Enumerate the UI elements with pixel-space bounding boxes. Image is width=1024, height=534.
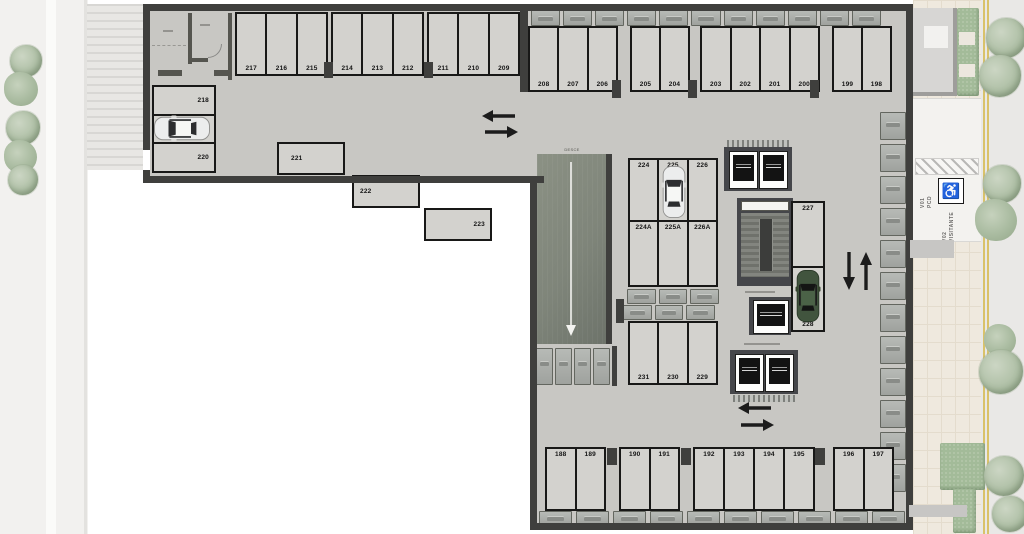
column-pillar	[810, 80, 819, 98]
room-label-mark	[200, 24, 210, 26]
wall-north	[143, 4, 913, 11]
spot-227: 227	[791, 201, 825, 268]
spot-row-196-197: 196 197	[833, 447, 894, 511]
accessible-icon: ♿	[938, 178, 964, 204]
wall-south-west-wing	[143, 176, 544, 183]
hedge	[940, 443, 985, 490]
traffic-arrow-right-icon	[740, 419, 774, 431]
storage-row-top	[531, 10, 881, 26]
traffic-arrow-left-icon	[482, 110, 516, 122]
storage-unit	[880, 304, 906, 332]
spot-row-199-198: 199 198	[832, 26, 892, 92]
traffic-arrow-down-icon	[843, 252, 855, 290]
spot-194: 194	[753, 447, 785, 511]
storage-unit	[880, 144, 906, 172]
elevator-vent-grille	[727, 140, 789, 147]
storage-unit	[555, 348, 572, 385]
storage-column-east	[880, 112, 906, 492]
spot-210: 210	[457, 12, 489, 76]
left-sidewalk-joint	[46, 0, 56, 534]
column-pillar	[688, 80, 697, 98]
spot-row-224A-226A: 224A 225A 226A	[628, 220, 718, 287]
bush	[975, 199, 1017, 241]
wall-south	[530, 523, 913, 530]
spot-208: 208	[528, 26, 559, 92]
spot-196: 196	[833, 447, 865, 511]
elevator-icon	[735, 354, 764, 392]
elevator-vent-grille	[733, 395, 795, 402]
stair-stringer	[759, 219, 773, 271]
storage-unit	[623, 305, 652, 320]
tree	[983, 165, 1021, 203]
spot-191: 191	[649, 447, 681, 511]
wall-wing-divider	[520, 4, 528, 92]
storage-unit	[880, 240, 906, 268]
storage-unit	[880, 400, 906, 428]
spot-226: 226	[687, 158, 718, 222]
spot-201: 201	[759, 26, 791, 92]
storage-unit	[756, 10, 785, 26]
spot-195: 195	[783, 447, 815, 511]
tree	[992, 496, 1024, 532]
room-dashed-line	[152, 45, 186, 46]
curb-step	[909, 505, 967, 517]
spot-190: 190	[619, 447, 651, 511]
no-parking-hatch	[915, 158, 979, 175]
spot-223: 223	[424, 208, 492, 241]
traffic-arrow-right-icon	[484, 126, 518, 138]
storage-unit	[531, 10, 560, 26]
traffic-arrow-up-icon	[860, 252, 872, 290]
spot-220: 220	[152, 142, 216, 173]
elevator-single	[749, 297, 791, 335]
elevator-icon	[759, 151, 788, 189]
entry-driveway	[87, 4, 143, 170]
visitor-02-label: V02 VISITANTE	[942, 206, 960, 242]
spot-224A: 224A	[628, 220, 659, 287]
storage-row-ramp	[536, 348, 610, 385]
wall-west-upper	[143, 4, 150, 150]
spot-193: 193	[723, 447, 755, 511]
spot-226A: 226A	[687, 220, 718, 287]
spot-202: 202	[730, 26, 762, 92]
forecourt-pavement	[913, 8, 957, 96]
tree	[986, 18, 1024, 58]
storage-unit	[659, 289, 688, 304]
storage-unit	[880, 368, 906, 396]
storage-unit	[686, 305, 715, 320]
room-wall	[158, 70, 182, 76]
spot-row-190-191: 190 191	[619, 447, 680, 511]
parking-floor-plan: 217 216 215 214 213 212 211 210 209 218 …	[0, 0, 1024, 534]
traffic-arrow-left-icon	[738, 402, 772, 414]
visitor-pcd-label: V01 PCD	[920, 178, 936, 208]
ramp-direction-arrow-icon	[565, 162, 577, 336]
spot-row-214-212: 214 213 212	[331, 12, 424, 76]
column-pillar	[324, 62, 333, 78]
room-wall	[214, 70, 232, 76]
wall-west-east-wing	[530, 176, 537, 530]
room-label-mark	[163, 30, 173, 32]
spot-199: 199	[832, 26, 863, 92]
wall-east	[906, 4, 913, 530]
storage-unit	[593, 348, 610, 385]
spot-229: 229	[687, 321, 718, 385]
elevator-bank-north	[724, 147, 792, 191]
hedge-paver	[959, 32, 975, 45]
tree	[979, 55, 1021, 97]
hall-label-mark	[745, 291, 775, 293]
spot-224: 224	[628, 158, 659, 222]
spot-225A: 225A	[657, 220, 688, 287]
spot-row-205-204: 205 204	[630, 26, 690, 92]
spot-198: 198	[861, 26, 892, 92]
room-wall	[188, 13, 192, 64]
spot-213: 213	[361, 12, 393, 76]
elevator-bank-south	[730, 350, 798, 394]
storage-unit	[655, 305, 684, 320]
spot-189: 189	[575, 447, 607, 511]
bush	[4, 72, 38, 106]
storage-wall	[612, 346, 617, 386]
column-pillar	[612, 80, 621, 98]
storage-row-center-1	[627, 289, 719, 304]
spot-197: 197	[863, 447, 895, 511]
ramp-wall	[606, 154, 612, 344]
spot-209: 209	[488, 12, 520, 76]
tree	[979, 350, 1023, 394]
spot-row-217-215: 217 216 215	[235, 12, 328, 76]
elevator-icon	[765, 354, 794, 392]
spot-217: 217	[235, 12, 267, 76]
spot-204: 204	[659, 26, 690, 92]
ramp-label: DESCE	[550, 147, 594, 152]
spot-231: 231	[628, 321, 659, 385]
car-white-spot-219	[153, 115, 211, 142]
storage-unit	[880, 272, 906, 300]
spot-214: 214	[331, 12, 363, 76]
column-pillar	[681, 448, 691, 465]
column-pillar	[616, 299, 624, 323]
storage-unit	[788, 10, 817, 26]
spot-221: 221	[277, 142, 345, 175]
spot-216: 216	[265, 12, 297, 76]
hedge	[957, 8, 979, 96]
storage-unit	[627, 289, 656, 304]
spot-row-192-195: 192 193 194 195	[693, 447, 815, 511]
spot-row-211-209: 211 210 209	[427, 12, 520, 76]
tree	[8, 165, 38, 195]
forecourt-patch	[924, 26, 948, 48]
car-white-spot-225	[661, 164, 687, 220]
storage-unit	[724, 10, 753, 26]
storage-unit	[820, 10, 849, 26]
storage-unit	[690, 289, 719, 304]
storage-unit	[880, 112, 906, 140]
spot-230: 230	[657, 321, 688, 385]
storage-unit	[659, 10, 688, 26]
storage-unit	[627, 10, 656, 26]
car-green-spot-228	[795, 267, 821, 325]
elevator-icon	[753, 300, 789, 334]
storage-row-center-2	[623, 305, 715, 320]
column-pillar	[424, 62, 433, 78]
hall-label-mark	[744, 343, 780, 345]
spot-203: 203	[700, 26, 732, 92]
spot-row-231-229: 231 230 229	[628, 321, 718, 385]
ramp-edge	[910, 240, 954, 258]
spot-row-203-200: 203 202 201 200	[700, 26, 820, 92]
spot-205: 205	[630, 26, 661, 92]
storage-unit	[536, 348, 553, 385]
spot-212: 212	[392, 12, 424, 76]
staircase	[737, 198, 793, 286]
room-wall	[192, 58, 208, 62]
column-pillar	[815, 448, 825, 465]
hedge-paver	[959, 64, 975, 77]
storage-unit	[574, 348, 591, 385]
stair-landing	[741, 201, 789, 211]
spot-row-208-206: 208 207 206	[528, 26, 618, 92]
column-pillar	[607, 448, 617, 465]
storage-unit	[880, 336, 906, 364]
spot-218: 218	[152, 85, 216, 116]
storage-unit	[880, 176, 906, 204]
storage-unit	[563, 10, 592, 26]
storage-unit	[595, 10, 624, 26]
storage-unit	[880, 208, 906, 236]
elevator-icon	[729, 151, 758, 189]
tree	[984, 456, 1024, 496]
spot-192: 192	[693, 447, 725, 511]
storage-unit	[852, 10, 881, 26]
storage-unit	[691, 10, 720, 26]
spot-row-188-189: 188 189	[545, 447, 606, 511]
spot-207: 207	[557, 26, 588, 92]
spot-188: 188	[545, 447, 577, 511]
